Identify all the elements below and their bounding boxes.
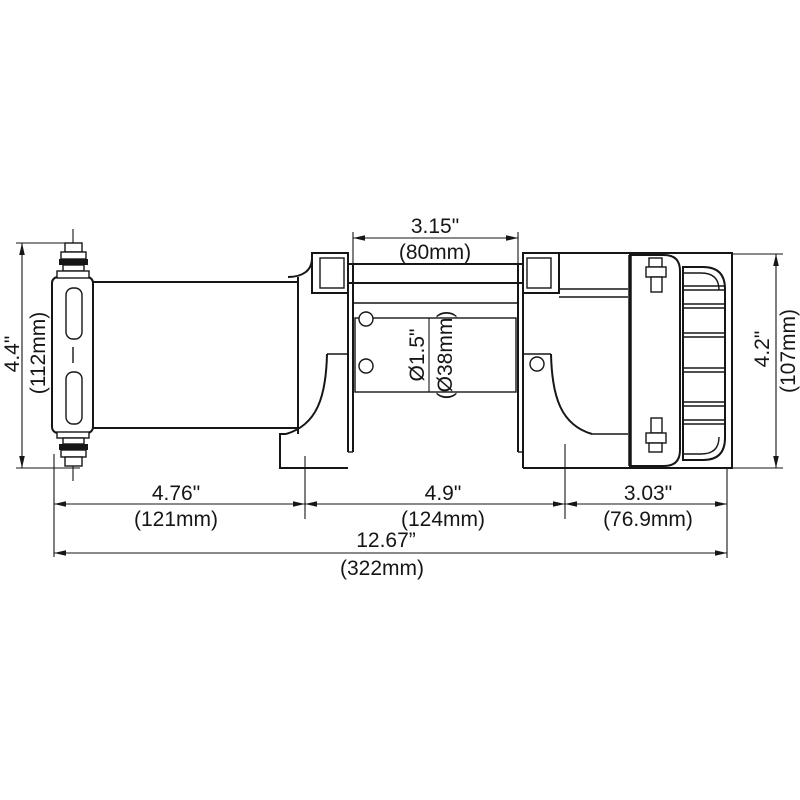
dim-label-drum-section-mm: (124mm) — [401, 508, 485, 531]
winch-dimension-diagram: 3.15" (80mm) 4.4" (112mm) 4.2" (107mm) — [0, 0, 800, 800]
bracket-left-foot-base — [280, 434, 348, 468]
technical-drawing-canvas: 3.15" (80mm) 4.4" (112mm) 4.2" (107mm) — [0, 0, 800, 800]
dim-label-drum-length-mm: (80mm) — [399, 241, 471, 264]
dim-label-right-height-in: 4.2" — [751, 331, 774, 368]
ribbed-end-cap — [680, 267, 727, 460]
dim-label-right-height-mm: (107mm) — [777, 309, 800, 393]
dim-label-overall-length-mm: (322mm) — [340, 557, 424, 580]
motor-assembly — [52, 229, 298, 481]
dim-label-gearbox-section-mm: (76.9mm) — [603, 508, 693, 531]
dim-right-height: 4.2" (107mm) — [733, 254, 800, 468]
motor-housing — [93, 282, 298, 428]
dim-label-overall-length-in: 12.67” — [356, 529, 416, 552]
dim-label-motor-section-in: 4.76" — [152, 482, 200, 505]
dim-drum-length: 3.15" (80mm) — [353, 215, 518, 264]
tie-bar — [348, 264, 523, 283]
dim-label-left-height-mm: (112mm) — [27, 312, 50, 394]
dim-label-drum-section-in: 4.9" — [425, 482, 462, 505]
dim-label-left-height-in: 4.4" — [1, 336, 24, 373]
drum-hole-bottom — [359, 359, 373, 373]
end-cap-slot-bottom — [66, 372, 82, 424]
tie-rod-bolt-bottom — [57, 432, 89, 481]
end-cap-slot-top — [66, 288, 82, 339]
dim-label-motor-section-mm: (121mm) — [134, 508, 218, 531]
bracket-right-clamp-tab-inner — [527, 258, 551, 288]
bracket-left-clamp-tab-inner — [320, 258, 344, 288]
dim-label-drum-diameter-in: Ø1.5" — [406, 329, 429, 382]
bracket-left-shoulder — [288, 258, 312, 277]
tie-rod-bolt-top — [57, 229, 89, 278]
dim-label-drum-diameter-mm: (Ø38mm) — [434, 311, 457, 400]
dim-overall-length: 12.67” (322mm) — [54, 529, 727, 580]
bracket-right-hole — [530, 357, 544, 371]
dim-label-gearbox-section-in: 3.03" — [624, 482, 672, 505]
mounting-bracket-right — [523, 253, 628, 434]
bracket-right-foot-curve — [551, 354, 592, 434]
drum-hole-top — [359, 312, 373, 326]
dim-label-drum-length-in: 3.15" — [411, 215, 459, 238]
